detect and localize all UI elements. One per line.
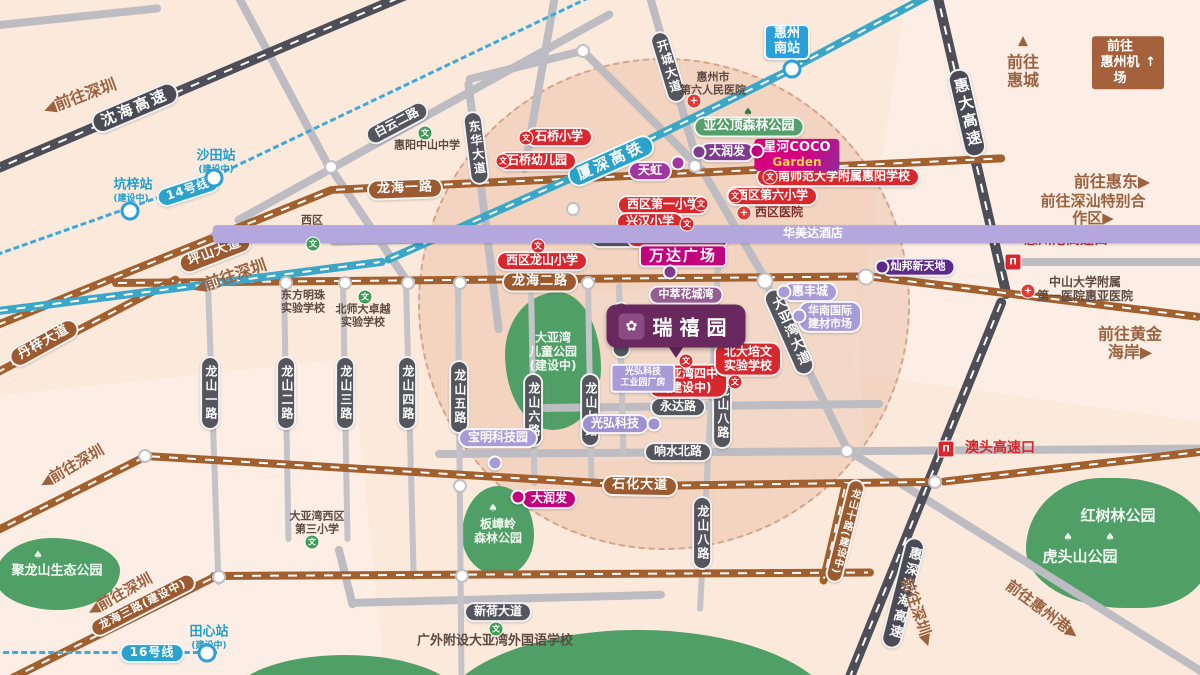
metro-station-icon [205,169,224,188]
poi-bsd-zhuoyue-school: 北师大卓越 实验学校 [336,303,391,328]
school-icon: 文 [680,217,695,232]
school-icon: 文 [728,375,743,390]
poi-children-park: 大亚湾 儿童公园 (建设中) [529,331,577,372]
tree-icon: ♠ [743,106,753,119]
metro-station-icon [121,202,140,221]
junction-node [453,479,467,493]
junction-node [324,160,338,174]
poi-hz-no6-hospital: 惠州市 第六人民医院 [680,71,746,96]
poi-gwfs-foreign-language-school: 广外附设大亚湾外国语学校 [417,635,573,650]
pill-danzi-ave: 丹梓大道 [6,315,83,370]
tree-icon: ♠ [33,549,43,562]
tree-icon: ♠ [488,502,498,515]
tree-icon: ♠ [1105,531,1115,544]
hospital-icon: + [737,206,752,221]
poi-ramada-hotel: 华美达酒店 [213,225,1200,243]
junction-node [212,570,226,584]
dir-to-huicheng: 前往 惠城 [1007,54,1039,91]
poi-baoming-tech-park: 宝明科技园 [458,428,538,448]
pill-yongda-rd: 永达路 [650,397,706,417]
poi-mangrove-park: 红树林公园 [1080,507,1155,524]
poi-huiyang-zhongshan-middle: 惠阳中山中学 [394,140,460,153]
junction-node [566,202,580,216]
junction-node [840,444,854,458]
dir-to-huidong: 前往惠东▶ [1074,173,1150,191]
rtmart-dot-icon [692,145,707,160]
poi-xiqu-hospital: 西区医院 [755,206,803,220]
school-icon: 文 [496,154,511,169]
pill-shihua-ave: 石化大道 [602,475,678,497]
hospital-icon: + [687,94,702,109]
rtmart-south-dot-icon [511,490,526,505]
pill-xinhe-ave: 新荷大道 [464,602,532,622]
canbang-dot-icon [875,260,890,275]
poi-guanghong-industrial-plant: 光弘科技 工业园厂房 [610,364,675,393]
real-estate-location-map: 沈海高速 惠大高速 惠深沿海高速 厦深高铁 坪山大道 丹梓大道 龙海一路 龙海二… [0,0,1200,675]
poi-shiqiao-primary: 石桥小学 [525,127,593,147]
callout-tail [205,229,216,239]
junction-node [757,273,774,290]
property-name: 瑞禧园 [653,312,734,341]
poi-julongshan-eco-park: 聚龙山生态公园 [11,565,102,580]
property-logo-icon: ✿ [619,313,645,339]
poi-xiqu-longshan-primary: 西区龙山小学 [496,251,588,271]
dir-to-airport-box: 前往 惠州机场↑ [1092,18,1164,108]
poi-hutoushan-park: 虎头山公园 [1042,548,1117,565]
junction-node [401,276,415,290]
poi-banzhangling-forest-park: 板嶂岭 森林公园 [474,518,522,546]
school-icon: 文 [519,131,534,146]
pill-longshan-4: 龙山四路 [397,356,417,430]
junction-node [576,44,590,58]
poi-xiqu-no3-primary: 大亚湾西区 第三小学 [290,510,345,535]
junction-node [581,276,595,290]
school-icon: 文 [418,126,433,141]
wanda-dot-icon [663,265,678,280]
junction-node [138,449,152,463]
metro-station-icon [783,60,802,79]
poi-canbang-newworld: 灿邦新天地 [881,258,956,277]
school-icon: 文 [728,189,743,204]
school-icon: 文 [694,197,709,212]
junction-node [858,269,875,286]
tianhong-dot-icon [671,156,686,171]
expwy-gate-icon: Π [1005,254,1022,271]
guanghong-dot-icon [647,417,662,432]
poi-rtmart-south: 大润发 [521,489,577,509]
station-tianxin-label: 田心站 [189,626,228,641]
poi-wanda-plaza: 万达广场 [639,244,727,267]
road-longshan-4 [403,283,417,580]
road-gray [0,4,161,30]
junction-node [338,276,352,290]
poi-zhongshan-univ-hospital: 中山大学附属 第一医院惠亚医院 [1037,276,1133,304]
poi-zhongcui-huachengwan: 中萃花城湾 [649,286,724,305]
pill-longshan-3: 龙山三路 [335,356,355,430]
station-shatian-label: 沙田站 [196,150,235,165]
baoming-dot-icon [488,456,503,471]
property-pointer [668,346,684,366]
metro-line16 [0,651,217,654]
pill-longhai-2: 龙海二路 [502,272,578,293]
pill-longhai-1: 龙海一路 [367,177,444,201]
poi-dongfang-mingzhu-school: 东方明珠 实验学校 [281,289,325,314]
school-icon: 文 [358,290,373,305]
pill-longshan-7: 龙山七路 [580,373,600,447]
school-icon: 文 [306,237,321,252]
poi-rtmart-north: 大润发 [699,142,755,162]
station-kengzi-label: 坑梓站 [113,179,152,194]
poi-yagongding-forest-park: 亚公顶森林公园 [693,117,804,138]
pill-longshan-2: 龙山二路 [276,356,296,430]
pill-metro-line16: 16号线 [120,643,185,663]
pill-longshan-1: 龙山一路 [200,356,220,430]
junction-node [455,569,469,583]
junction-node [928,475,942,489]
dir-to-gold-coast: 前往黄金海岸▶ [1095,326,1165,363]
tri-right-icon: ▶ [1140,343,1152,362]
road-hzport-exit [1008,258,1200,266]
poi-tianhong: 天虹 [628,161,672,181]
expwy-gate-icon: Π [938,441,955,458]
property-card-ruixiyuan: ✿ 瑞禧园 [607,305,746,348]
exit-aotou-label: 澳头高速口 [965,440,1035,456]
station-huizhou-south: 惠州 南站 [764,24,810,60]
school-icon: 文 [531,239,546,254]
pill-xiangshui-rd: 响水北路 [644,442,712,462]
metro-station-icon [198,644,217,663]
dir-to-shenshan: 前往深汕特别合作区▶ [1040,193,1147,228]
school-icon: 文 [489,622,504,637]
hospital-icon: + [1021,284,1036,299]
school-icon: 文 [763,170,778,185]
poi-huanan-building-market: 华南国际 建材市场 [798,301,862,333]
poi-guanghong-tech: 光弘科技 [581,414,649,434]
junction-node [453,276,467,290]
junction-node [688,159,702,173]
tree-icon: ♠ [1063,531,1073,544]
school-icon: 文 [305,535,320,550]
pill-longshan-5: 龙山五路 [449,360,469,434]
huifeng-dot-icon [777,285,792,300]
arrow-up-icon: ↑ [1145,55,1156,71]
jiancai-dot-icon [792,309,807,324]
pill-longshan-8b: 龙山八路 [692,496,712,570]
tri-right-icon: ▶ [1138,172,1150,191]
xinghe-dot-icon [750,144,765,159]
dir-to-huicheng-arrow: ▲ [1018,35,1028,50]
